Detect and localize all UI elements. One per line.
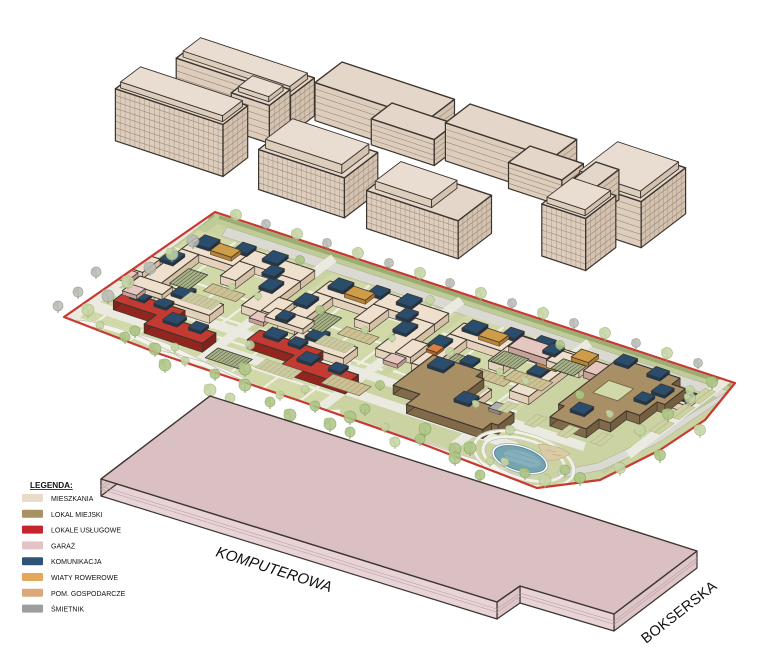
svg-text:LOKALE USŁUGOWE: LOKALE USŁUGOWE (51, 528, 121, 535)
svg-text:LOKAL MIEJSKI: LOKAL MIEJSKI (51, 512, 103, 519)
svg-text:ŚMIETNIK: ŚMIETNIK (51, 605, 84, 614)
svg-text:POM. GOSPODARCZE: POM. GOSPODARCZE (51, 591, 126, 598)
svg-text:LEGENDA:: LEGENDA: (30, 481, 73, 490)
svg-text:GARAŻ: GARAŻ (51, 541, 76, 550)
svg-text:WIATY ROWEROWE: WIATY ROWEROWE (51, 575, 118, 582)
svg-text:MIESZKANIA: MIESZKANIA (51, 496, 94, 503)
svg-text:KOMUNIKACJA: KOMUNIKACJA (51, 559, 102, 566)
